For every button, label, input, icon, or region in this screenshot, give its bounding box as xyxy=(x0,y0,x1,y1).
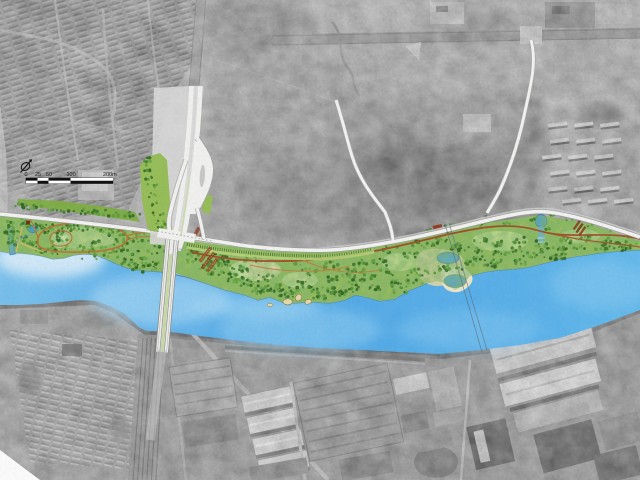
svg-text:0: 0 xyxy=(25,172,28,178)
svg-text:100: 100 xyxy=(67,172,76,178)
svg-text:50: 50 xyxy=(46,172,52,178)
svg-text:25: 25 xyxy=(35,172,41,178)
svg-text:200m: 200m xyxy=(103,172,117,178)
